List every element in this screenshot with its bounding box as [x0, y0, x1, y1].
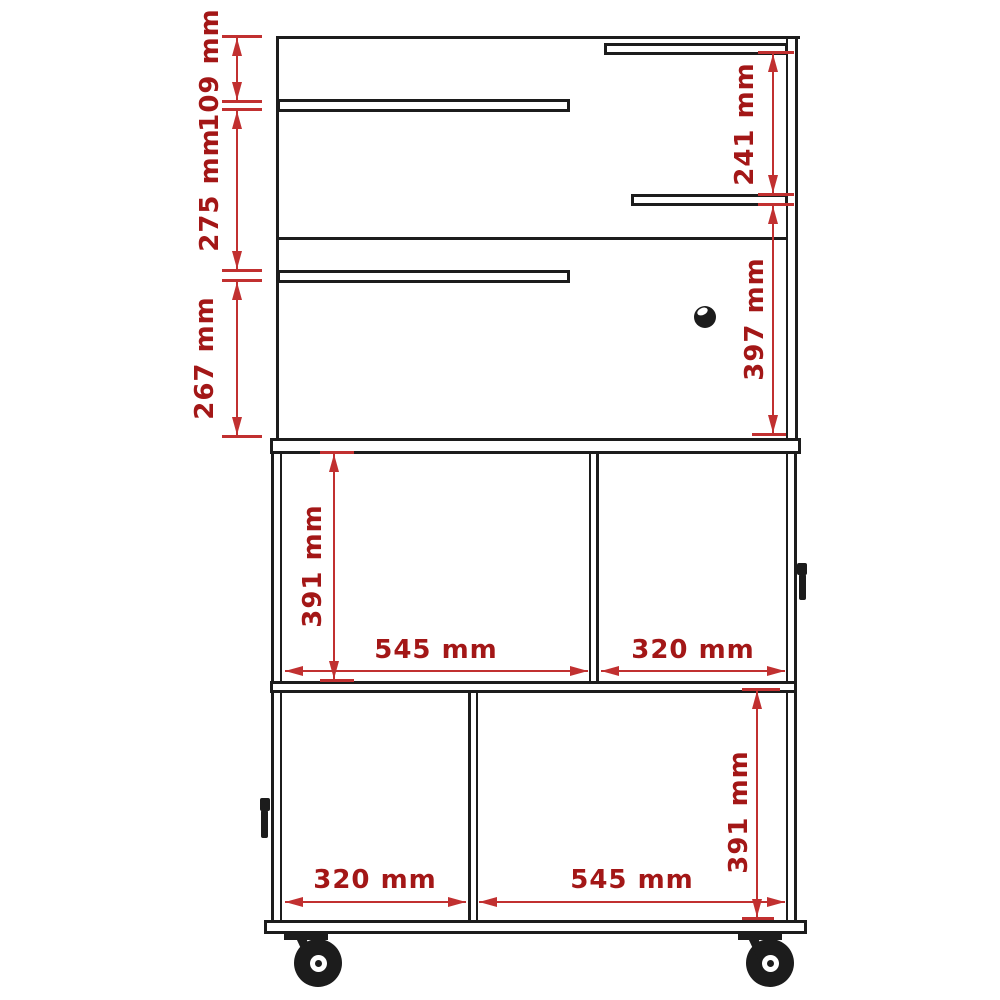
dim-label-320-row2: 320 mm — [313, 865, 437, 895]
arrowhead-down-icon — [768, 175, 778, 193]
dim-tick — [222, 35, 262, 38]
arrowhead-up-icon — [752, 691, 762, 709]
base-plinth — [264, 920, 807, 934]
arrowhead-up-icon — [768, 54, 778, 72]
upper-cabinet-right-inner — [786, 36, 788, 453]
row2-divider-left — [468, 693, 471, 921]
arrowhead-down-icon — [232, 82, 242, 100]
dim-tick — [222, 435, 262, 438]
dim-tick — [222, 100, 262, 103]
upper-cabinet-mid-divider — [276, 237, 788, 240]
dim-tick — [320, 679, 354, 682]
dim-line-320-row1 — [601, 670, 785, 672]
arrowhead-right-icon — [767, 897, 785, 907]
arrowhead-right-icon — [570, 666, 588, 676]
dim-tick — [758, 193, 794, 196]
dim-tick — [222, 269, 262, 272]
furniture-dimension-diagram: 109 mm 275 mm 267 mm 241 mm 397 mm 391 m… — [0, 0, 1000, 1000]
dim-label-391-row2: 391 mm — [724, 750, 754, 874]
arrowhead-down-icon — [232, 251, 242, 269]
caster-left-axle — [315, 960, 322, 967]
dim-line-320-row2 — [285, 901, 466, 903]
dim-label-241: 241 mm — [730, 62, 760, 186]
arrowhead-right-icon — [767, 666, 785, 676]
shelf-upper-left — [277, 99, 570, 112]
arrowhead-down-icon — [768, 415, 778, 433]
arrowhead-left-icon — [601, 666, 619, 676]
dim-label-109: 109 mm — [195, 8, 225, 132]
dim-line-267 — [236, 282, 238, 435]
dim-label-320-row1: 320 mm — [631, 635, 755, 665]
arrowhead-up-icon — [232, 38, 242, 56]
dim-tick — [222, 279, 262, 282]
dim-line-391-row2 — [756, 691, 758, 917]
row2-divider-right — [476, 693, 478, 921]
upper-cabinet-top-edge — [276, 36, 800, 39]
arrowhead-up-icon — [329, 454, 339, 472]
dim-label-545-row1: 545 mm — [374, 635, 498, 665]
arrowhead-left-icon — [479, 897, 497, 907]
dim-line-275 — [236, 111, 238, 269]
dim-line-391-row1 — [333, 454, 335, 679]
dim-label-397: 397 mm — [740, 257, 770, 381]
dim-label-545-row2: 545 mm — [570, 865, 694, 895]
arrowhead-left-icon — [285, 897, 303, 907]
arrowhead-down-icon — [752, 899, 762, 917]
middle-shelf-panel — [270, 681, 797, 693]
caster-right-axle — [767, 960, 774, 967]
keyhole-icon — [694, 306, 716, 328]
dim-tick — [222, 108, 262, 111]
door-handle-right-stem — [799, 574, 806, 600]
dim-tick — [742, 917, 774, 920]
arrowhead-up-icon — [232, 111, 242, 129]
row1-divider-left — [589, 454, 591, 682]
arrowhead-up-icon — [232, 282, 242, 300]
arrowhead-right-icon — [448, 897, 466, 907]
shelf-lower-left — [277, 270, 570, 283]
dim-line-397 — [772, 206, 774, 433]
dim-label-267: 267 mm — [190, 296, 220, 420]
dim-line-545-row2 — [479, 901, 785, 903]
dim-line-545-row1 — [285, 670, 588, 672]
dim-tick — [752, 433, 786, 436]
arrowhead-left-icon — [285, 666, 303, 676]
upper-cabinet-right-outer — [795, 36, 798, 453]
keyhole-highlight — [696, 306, 709, 317]
arrowhead-down-icon — [232, 417, 242, 435]
door-handle-left-stem — [261, 810, 268, 838]
dim-label-275: 275 mm — [195, 128, 225, 252]
row1-divider-right — [596, 454, 599, 682]
dim-label-391-row1: 391 mm — [298, 504, 328, 628]
arrowhead-up-icon — [768, 206, 778, 224]
dim-line-241 — [772, 54, 774, 193]
